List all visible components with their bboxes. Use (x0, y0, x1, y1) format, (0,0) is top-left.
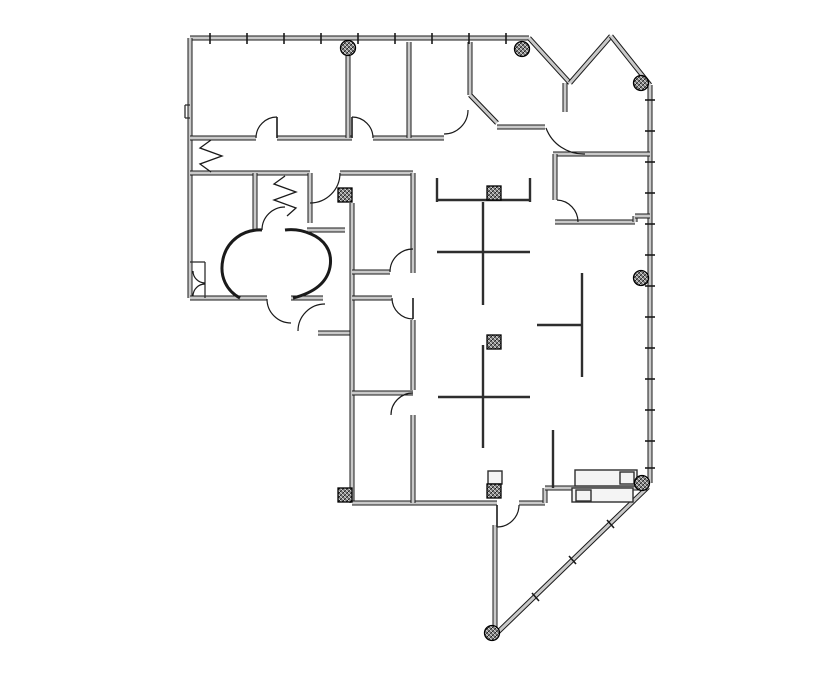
curved-wall (222, 230, 262, 298)
floor-plan-drawing (0, 0, 835, 678)
structural-column-round (634, 271, 649, 286)
door-swing-arc (557, 200, 578, 222)
counter-fixture (576, 490, 591, 501)
door-swing-arc (444, 110, 468, 134)
structural-column-square (487, 484, 501, 498)
door-swing-arc (310, 173, 340, 203)
door-swing-arc (497, 505, 519, 527)
structural-column-square (487, 335, 501, 349)
wall-core (570, 36, 611, 83)
structural-column-round (341, 41, 356, 56)
floor-plan-page (0, 0, 835, 678)
wall-edge (528, 39, 569, 84)
wall-edge (471, 94, 498, 122)
door-swing-arc (193, 284, 205, 296)
structural-column-round (515, 42, 530, 57)
wall-core (529, 38, 570, 83)
wall-edge (469, 96, 496, 124)
door-swing-arc (352, 117, 373, 138)
structural-column-round (635, 476, 650, 491)
wall-core (470, 95, 497, 123)
structural-column-square (487, 186, 501, 200)
folding-door-zigzag (274, 176, 296, 216)
wall-edge (568, 35, 609, 82)
counter-fixture (488, 471, 502, 484)
door-swing-arc (298, 304, 325, 331)
wall-edge (530, 37, 571, 82)
structural-column-round (485, 626, 500, 641)
door-swing-arc (256, 117, 277, 138)
door-swing-arc (267, 299, 291, 323)
curved-wall (285, 230, 331, 298)
wall-edge (572, 37, 613, 84)
structural-column-square (338, 488, 352, 502)
door-swing-arc (262, 207, 285, 230)
folding-door-zigzag (200, 140, 222, 172)
door-swing-arc (390, 249, 413, 272)
door-swing-arc (392, 298, 413, 319)
structural-column-square (338, 188, 352, 202)
door-swing-arc (193, 271, 205, 283)
door-swing-arc (391, 393, 413, 415)
structural-column-round (634, 76, 649, 91)
door-swing-arc (546, 128, 585, 154)
counter-fixture (620, 472, 634, 484)
